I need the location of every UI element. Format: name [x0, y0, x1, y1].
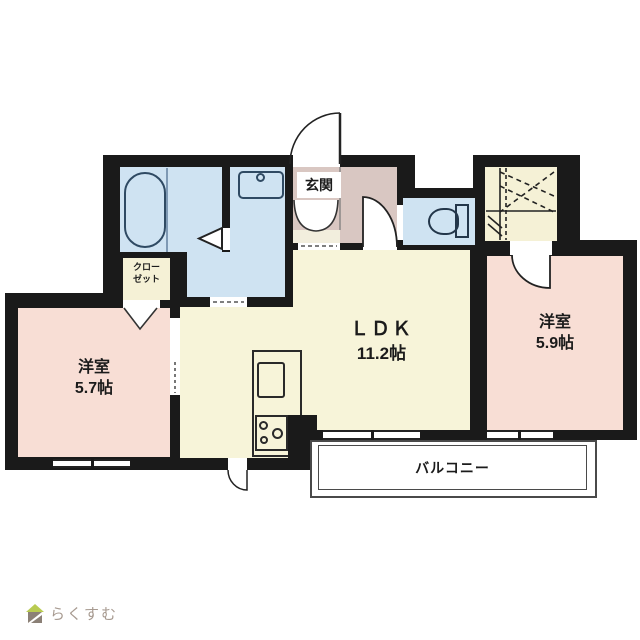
- service-door: [228, 470, 247, 490]
- window-tick-ldk: [371, 430, 374, 440]
- house-logo-icon: [26, 604, 44, 624]
- closet-label-line1: クロー: [123, 262, 170, 274]
- entrance-threshold: [298, 243, 340, 250]
- washroom-floor-extension: [187, 252, 230, 297]
- ldk-label: ＬＤＫ 11.2帖: [293, 318, 470, 365]
- logo: らくすむ: [26, 603, 118, 624]
- balcony-inner-rail: バルコニー: [318, 445, 587, 490]
- hallway-floor: [340, 167, 397, 243]
- entrance-door-opening: [293, 155, 340, 167]
- bedroom-left-door-opening: [170, 318, 180, 360]
- ldk-area-text: 11.2帖: [293, 343, 470, 365]
- bathroom-door-opening: [222, 228, 230, 250]
- closet-label-line2: ゼット: [123, 274, 170, 286]
- entrance-label-text: 玄関: [305, 175, 333, 195]
- window-tick-left: [91, 459, 94, 468]
- hallway-door-opening: [363, 240, 397, 250]
- stove-burner-1: [259, 421, 268, 430]
- logo-text: らくすむ: [50, 603, 118, 624]
- entrance-step: [293, 230, 340, 243]
- washbasin-faucet-icon: [256, 173, 265, 182]
- bedroom-right-label: 洋室 5.9帖: [487, 313, 623, 355]
- balcony-label: バルコニー: [415, 458, 490, 478]
- storage-ladder-floor: [485, 167, 557, 241]
- bedroom-right-area-text: 5.9帖: [487, 334, 623, 355]
- storage-door-opening: [510, 241, 552, 255]
- bedroom-left-label-text: 洋室: [18, 358, 170, 379]
- stove-burner-3: [260, 436, 268, 444]
- toilet-door-opening: [397, 205, 403, 240]
- bedroom-left-door-panel: [170, 360, 180, 395]
- bedroom-left-label: 洋室 5.7帖: [18, 358, 170, 400]
- ldk-label-text: ＬＤＫ: [293, 318, 470, 343]
- closet-label: クロー ゼット: [123, 262, 170, 285]
- service-door-opening: [228, 458, 247, 470]
- stove-burner-2: [272, 428, 283, 439]
- bedroom-right-label-text: 洋室: [487, 313, 623, 334]
- window-tick-right: [518, 430, 521, 440]
- balcony: バルコニー: [310, 440, 597, 498]
- floorplan-canvas: 玄関 ＬＤＫ 11.2帖 洋室 5.7帖 洋室 5.9帖 クロー ゼット バルコ…: [0, 0, 640, 640]
- bathtub-icon: [124, 172, 166, 248]
- kitchen-sink-icon: [257, 362, 285, 398]
- closet-door-opening: [123, 300, 160, 308]
- bedroom-left-area-text: 5.7帖: [18, 379, 170, 400]
- entrance-label: 玄関: [297, 172, 341, 198]
- toilet-tank-icon: [455, 204, 469, 238]
- washroom-sliding-door: [210, 297, 247, 307]
